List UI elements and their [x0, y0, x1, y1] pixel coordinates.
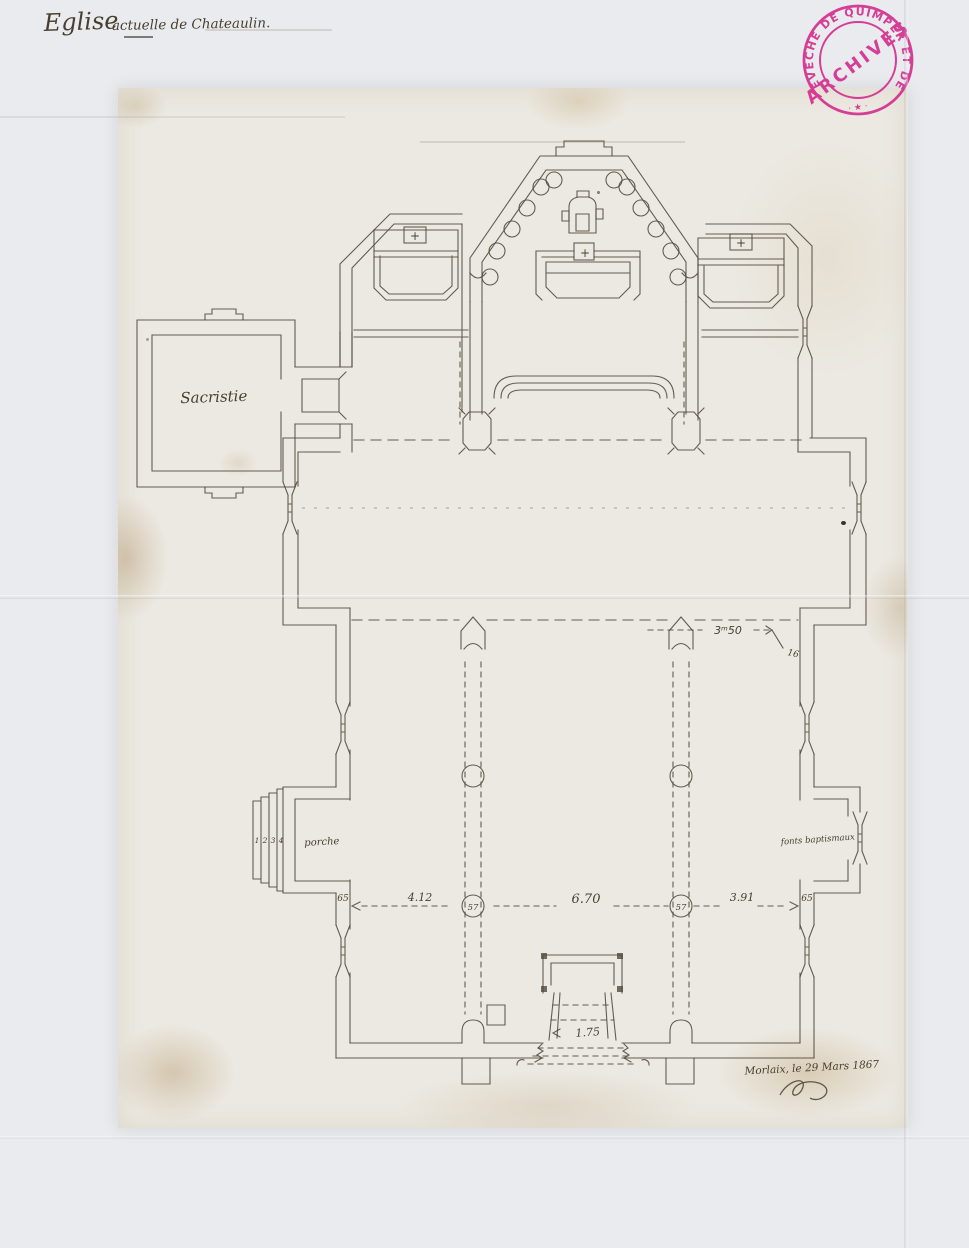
choir: + [470, 243, 698, 420]
colonnade-left [461, 617, 485, 1043]
svg-text:ÉVÊCHÉ DE QUIMPER ET DE LÉON: ÉVÊCHÉ DE QUIMPER ET DE LÉON [0, 0, 913, 93]
nave: 65 4.12 57 6.70 57 3.91 65 [336, 608, 814, 1084]
dimension-bay-value: 3ᵐ50 [714, 624, 742, 637]
dim-column-left: 57 [468, 903, 479, 913]
dim-wall-right: 65 [801, 894, 813, 904]
ink-speck [841, 521, 846, 525]
right-chapel: + [684, 224, 812, 452]
dim-column-right: 57 [676, 903, 687, 913]
porch-label: porche [304, 836, 340, 849]
high-altar: + [536, 243, 640, 300]
title-block: Eglise actuelle de Chateaulin. [42, 6, 332, 37]
signature-flourish [780, 1081, 827, 1100]
fonts-chapel: fonts baptismaux [780, 787, 867, 893]
dim-aisle-right: 3.91 [730, 891, 755, 904]
left-chapel-cross: + [410, 229, 420, 243]
west-entrance: 1.75 [517, 953, 649, 1065]
dim-wall-left: 65 [337, 894, 349, 904]
sacristy-corridor [295, 332, 352, 452]
porch: 1 2 3 4 porche [253, 787, 350, 893]
door-width-value: 1.75 [575, 1025, 600, 1040]
communion-rail [494, 376, 674, 398]
right-chapel-cross: + [736, 236, 746, 250]
sacristy-label: Sacristie [180, 387, 248, 407]
fonts-label: fonts baptismaux [780, 832, 856, 847]
apse-niches [482, 172, 686, 285]
dimension-bay-note: 16 [786, 648, 800, 660]
dimension-nave-row: 65 4.12 57 6.70 57 3.91 65 [337, 891, 813, 917]
crossing-pier-right [668, 408, 704, 454]
transept: 3ᵐ50 16 [283, 408, 866, 660]
dim-aisle-left: 4.12 [407, 891, 433, 904]
title-lead-word: Eglise [42, 6, 119, 37]
porch-step-2: 2 [262, 836, 268, 845]
sacristy: Sacristie [137, 309, 352, 498]
scanned-drawing-photo: + + + [0, 0, 969, 1248]
ink-dot [597, 191, 600, 194]
stamp-ring-text: ÉVÊCHÉ DE QUIMPER ET DE LÉON [0, 0, 913, 93]
porch-step-4: 4 [278, 836, 284, 845]
crossing-pier-left [459, 408, 495, 454]
place-date: Morlaix, le 29 Mars 1867 [743, 1058, 880, 1077]
floor-plan-drawing: + + + [0, 0, 969, 1248]
high-altar-cross: + [580, 246, 590, 260]
colonnade-right [669, 617, 693, 1043]
left-chapel: + [340, 214, 468, 424]
tabernacle [562, 191, 603, 233]
foxing-dot [146, 338, 149, 341]
title-rest: actuelle de Chateaulin. [112, 15, 271, 34]
inscription-block: Morlaix, le 29 Mars 1867 [743, 1058, 880, 1099]
dim-nave-center: 6.70 [572, 892, 601, 907]
porch-step-1: 1 [255, 836, 260, 845]
porch-step-3: 3 [271, 836, 276, 845]
